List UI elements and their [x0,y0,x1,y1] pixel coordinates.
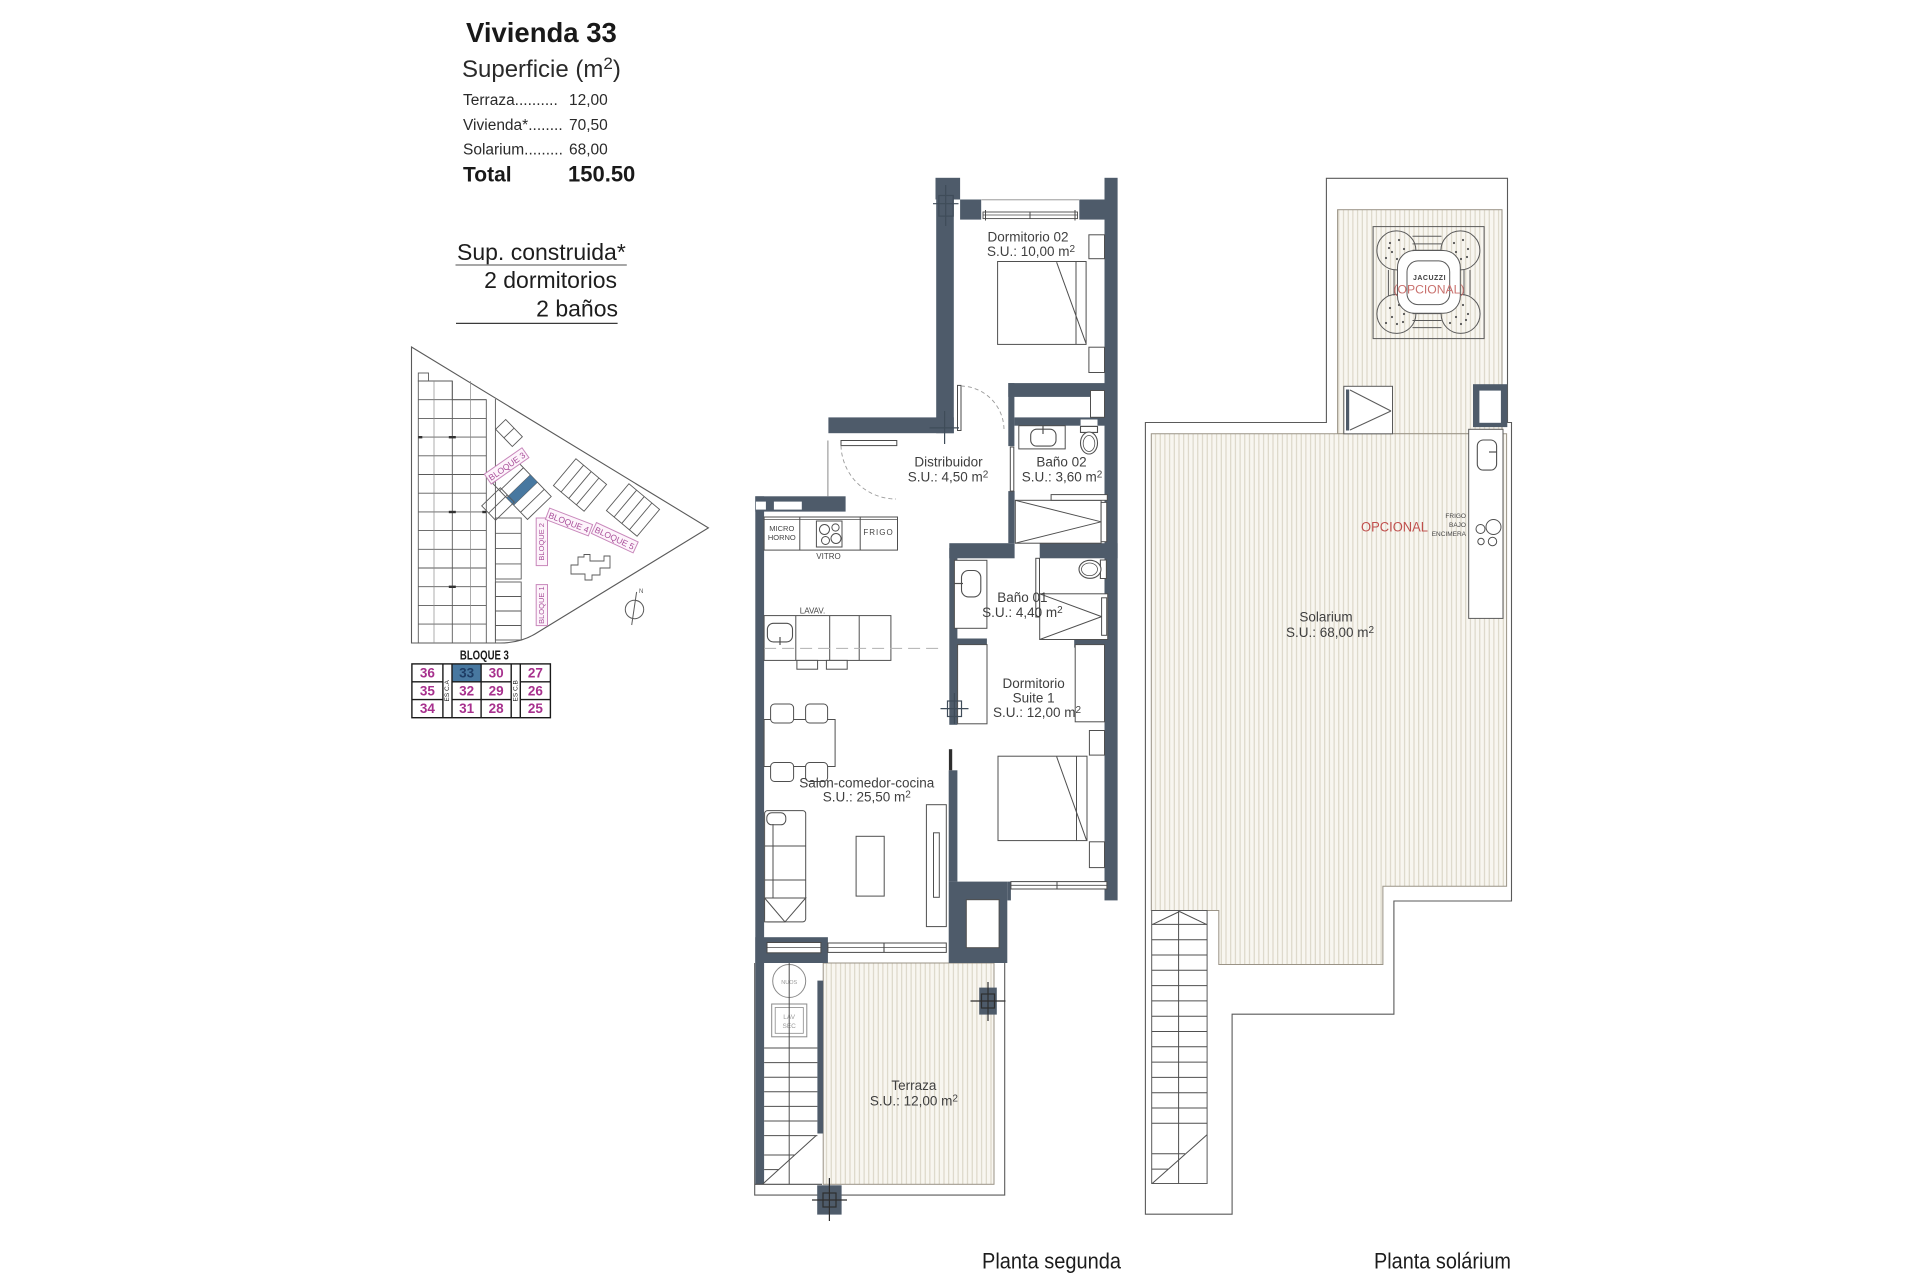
svg-text:BLOQUE 3: BLOQUE 3 [460,648,509,663]
svg-text:FRIGO: FRIGO [1445,513,1466,520]
svg-text:(OPCIONAL): (OPCIONAL) [1394,285,1465,297]
svg-text:S.U.: 12,00 m2: S.U.: 12,00 m2 [993,705,1082,720]
svg-text:12,00: 12,00 [569,92,608,109]
svg-text:Vivienda 33: Vivienda 33 [466,17,617,48]
svg-text:Salon-comedor-cocina: Salon-comedor-cocina [799,776,935,791]
svg-text:S.U.: 12,00 m2: S.U.: 12,00 m2 [870,1094,959,1109]
svg-text:29: 29 [489,683,504,698]
svg-text:S.U.: 10,00 m2: S.U.: 10,00 m2 [987,244,1076,259]
svg-text:27: 27 [528,666,543,681]
svg-text:ES C.A: ES C.A [444,679,451,701]
svg-text:Superficie (m2): Superficie (m2) [462,54,621,83]
svg-text:OPCIONAL: OPCIONAL [1361,520,1428,535]
svg-text:Vivienda*........: Vivienda*........ [463,117,563,134]
svg-text:25: 25 [528,701,544,716]
svg-text:BAJO: BAJO [1449,522,1466,529]
svg-text:S.U.: 4,40 m2: S.U.: 4,40 m2 [982,605,1063,620]
svg-text:BLOQUE 1: BLOQUE 1 [537,586,546,624]
svg-text:Sup. construida*: Sup. construida* [457,239,626,265]
svg-text:28: 28 [489,701,505,716]
svg-text:Solarium.........: Solarium......... [463,141,563,158]
svg-text:Planta solárium: Planta solárium [1374,1249,1511,1274]
svg-text:150.50: 150.50 [568,162,635,187]
svg-text:31: 31 [459,701,475,716]
svg-text:VITRO: VITRO [816,552,840,561]
svg-text:LAVAV.: LAVAV. [800,607,826,616]
svg-text:33: 33 [459,666,475,681]
svg-text:BLOQUE 2: BLOQUE 2 [537,523,546,561]
svg-text:JACUZZI: JACUZZI [1413,275,1446,282]
svg-text:ES C.B: ES C.B [513,680,520,701]
svg-text:S.U.: 25,50 m2: S.U.: 25,50 m2 [823,790,912,805]
svg-text:36: 36 [420,666,436,681]
svg-text:S.U.: 4,50 m2: S.U.: 4,50 m2 [908,470,989,485]
svg-text:Solarium: Solarium [1299,610,1352,625]
svg-text:Terraza: Terraza [891,1078,937,1093]
svg-text:Distribuidor: Distribuidor [914,455,983,470]
svg-text:Baño 02: Baño 02 [1036,455,1086,470]
svg-text:Dormitorio: Dormitorio [1002,676,1064,691]
svg-text:N: N [639,589,643,595]
svg-text:30: 30 [489,666,504,681]
svg-text:70,50: 70,50 [569,117,608,134]
svg-text:Total: Total [463,164,512,187]
svg-text:HORNO: HORNO [768,533,796,542]
svg-text:2 baños: 2 baños [536,296,618,322]
svg-text:S.U.: 3,60 m2: S.U.: 3,60 m2 [1022,470,1103,485]
svg-text:MICRO: MICRO [769,524,794,533]
svg-text:34: 34 [420,701,436,716]
svg-text:68,00: 68,00 [569,141,608,158]
svg-text:ENCIMERA: ENCIMERA [1432,531,1467,538]
svg-text:32: 32 [459,683,474,698]
svg-text:2 dormitorios: 2 dormitorios [484,267,617,293]
svg-text:Baño 01: Baño 01 [997,590,1047,605]
svg-text:Dormitorio 02: Dormitorio 02 [987,230,1068,245]
svg-text:Terraza..........: Terraza.......... [463,92,558,109]
svg-text:FRIGO: FRIGO [863,528,893,537]
svg-text:S.U.: 68,00 m2: S.U.: 68,00 m2 [1286,625,1375,640]
svg-text:Suite 1: Suite 1 [1013,691,1055,706]
svg-text:Planta segunda: Planta segunda [982,1249,1121,1274]
svg-text:35: 35 [420,683,436,698]
svg-text:26: 26 [528,683,544,698]
